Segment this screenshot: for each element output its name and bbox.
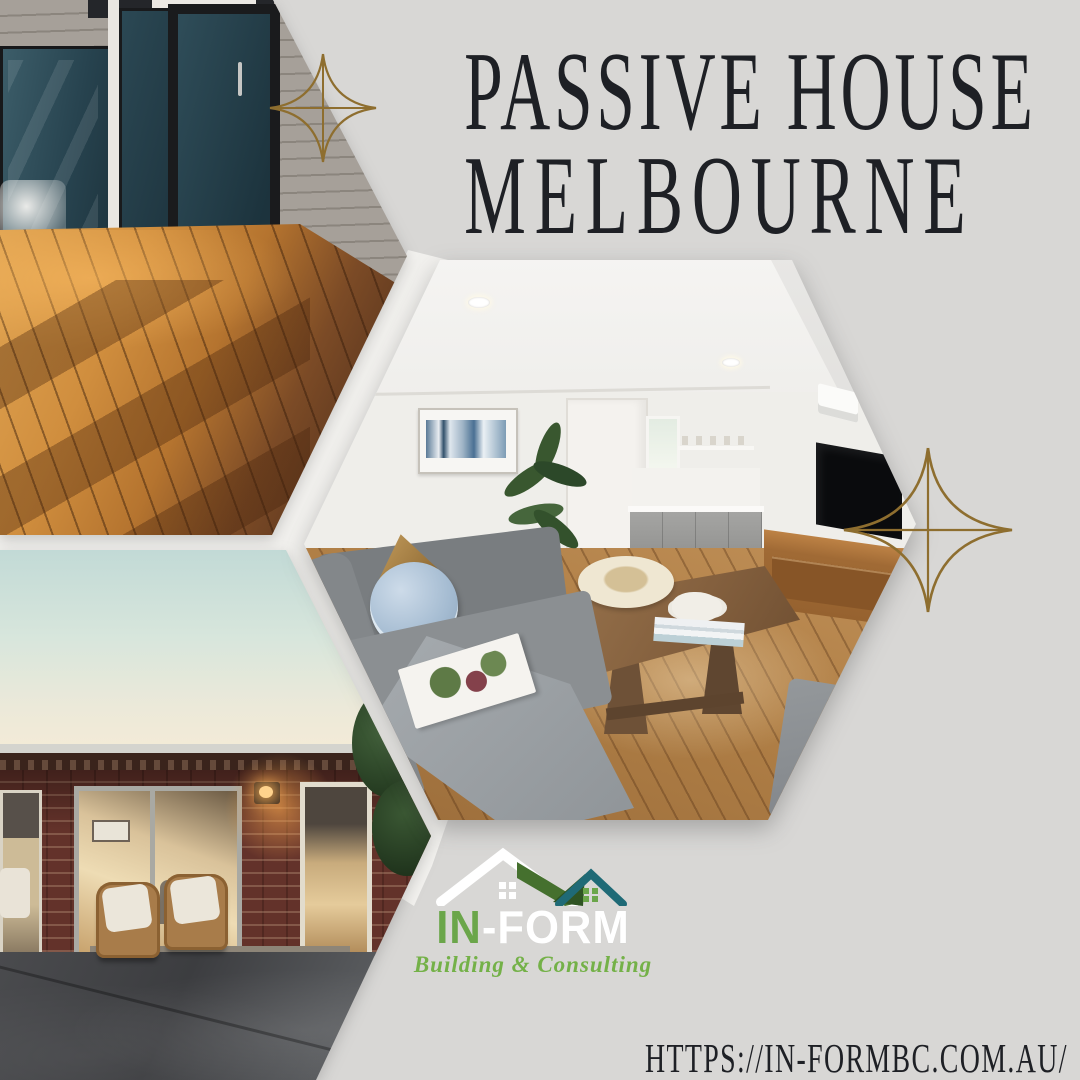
straw-hat xyxy=(578,556,674,608)
logo-wordmark-form: -FORM xyxy=(482,901,630,953)
coral-ornament xyxy=(672,592,722,622)
downlight xyxy=(722,358,740,367)
inform-logo: IN-FORM Building & Consulting xyxy=(405,844,661,978)
poster-canvas: PASSIVE HOUSE MELBOURNE IN-FORM Building… xyxy=(0,0,1080,1080)
website-url[interactable]: HTTPS://IN-FORMBC.COM.AU/ xyxy=(446,1034,1068,1080)
website-url-text[interactable]: HTTPS://IN-FORMBC.COM.AU/ xyxy=(645,1034,1068,1080)
shelf-items xyxy=(682,436,748,445)
open-shelf xyxy=(678,446,754,450)
title-line-1: PASSIVE HOUSE xyxy=(464,40,902,144)
logo-wordmark: IN-FORM xyxy=(411,900,654,954)
logo-house-roofs-icon xyxy=(433,844,633,906)
kitchen-window xyxy=(646,416,680,474)
poster-title: PASSIVE HOUSE MELBOURNE xyxy=(330,40,1036,248)
ceiling xyxy=(300,255,920,405)
ottoman xyxy=(768,677,934,838)
sparkle-star-icon xyxy=(842,446,1014,614)
logo-wordmark-in: IN xyxy=(436,901,482,953)
logo-tagline: Building & Consulting xyxy=(405,952,661,978)
framed-art-print xyxy=(426,420,506,458)
title-line-2: MELBOURNE xyxy=(464,144,902,248)
downlight xyxy=(468,297,490,308)
kitchen-splashback xyxy=(632,468,760,510)
